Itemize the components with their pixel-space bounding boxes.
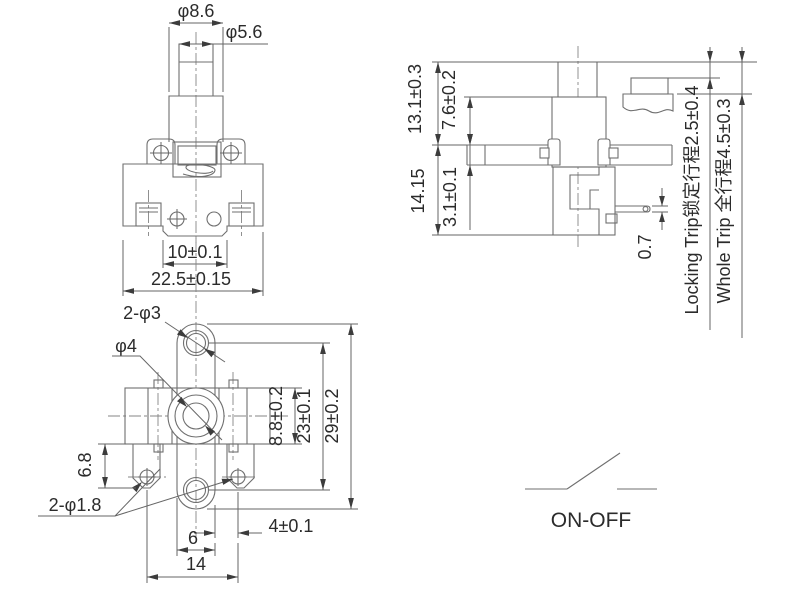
right-rivet (207, 212, 221, 226)
side-right-clip (609, 148, 618, 158)
on-off-symbol: ON-OFF (525, 453, 657, 532)
side-left-clip (540, 148, 549, 158)
pressed-plunger-break (623, 94, 673, 113)
spring-window-inner (178, 146, 216, 165)
label-tab-holes: 2-φ1.8 (49, 495, 102, 515)
dim-6-label: 6 (188, 528, 198, 548)
side-view: 13.1±0.3 7.6±0.2 14.15 3.1±0.1 0.7 Locki… (405, 46, 757, 338)
switch-contact-symbol (525, 453, 657, 489)
right-ear-hole-crosshair (220, 142, 242, 164)
center-boss-outer (168, 388, 224, 444)
terminal-bump-tr (229, 380, 238, 388)
terminal-bump-tl (154, 380, 163, 388)
dim-notch-label: 10±0.1 (168, 242, 223, 262)
dim-body-width-label: 22.5±0.15 (151, 269, 231, 289)
dim-4-arrows (204, 530, 249, 536)
dim-plunger-outer-label: φ8.6 (178, 1, 215, 21)
dim-88-label: 8.8±0.2 (266, 386, 286, 446)
dim-14-label: 14 (186, 554, 206, 574)
dim-plunger-inner-label: φ5.6 (226, 22, 263, 42)
label-center-hole: φ4 (115, 336, 137, 356)
side-left-tab (548, 139, 560, 165)
terminal-bump-br (229, 444, 238, 452)
switch-technical-drawing: φ8.6 φ5.6 10±0.1 22.5±0.15 (0, 0, 788, 610)
pin-tip-detail (643, 207, 648, 212)
side-right-tab (598, 139, 610, 165)
spring-window-outer (173, 142, 221, 177)
leader-bracket-holes-arrow2 (204, 349, 215, 358)
dim-locking-label: Locking Trip锁定行程2.5±0.4 (682, 86, 702, 315)
left-rivet-crosshair (167, 209, 187, 229)
right-solder-tab (227, 444, 254, 488)
dim-whole-label: Whole Trip 全行程4.5±0.3 (714, 99, 734, 304)
dim-4-label: 4±0.1 (269, 516, 314, 536)
left-ear-hole-crosshair (150, 142, 172, 164)
side-plunger (558, 62, 597, 97)
dim-31-label: 3.1±0.1 (440, 167, 460, 227)
dim-68-label: 6.8 (75, 452, 95, 477)
side-lower-body (553, 167, 615, 235)
dim-23-label: 23±0.1 (294, 389, 314, 444)
front-view: φ8.6 φ5.6 10±0.1 22.5±0.15 (123, 1, 268, 296)
dim-07-arrows (659, 196, 665, 222)
body-outline (123, 164, 263, 236)
leader-tab-holes-arrow1 (132, 482, 142, 492)
dim-07-label: 0.7 (635, 234, 655, 259)
dim-1415-label: 14.15 (408, 168, 428, 213)
dim-131-label: 13.1±0.3 (405, 64, 425, 134)
dim-76-label: 7.6±0.2 (439, 70, 459, 130)
dim-29-label: 29±0.2 (322, 389, 342, 444)
pressed-plunger-top (631, 78, 668, 94)
terminal-bump-bl (154, 444, 163, 452)
on-off-label: ON-OFF (551, 509, 631, 532)
dim-07-lines (652, 188, 668, 230)
spring-coil (183, 164, 215, 176)
top-view: 2-φ3 φ4 2-φ1.8 8.8±0.2 23±0.1 29±0.2 6.8… (38, 238, 358, 583)
drawing-canvas: φ8.6 φ5.6 10±0.1 22.5±0.15 (0, 0, 788, 610)
label-bracket-holes: 2-φ3 (123, 303, 161, 323)
latch-channel (570, 167, 599, 235)
